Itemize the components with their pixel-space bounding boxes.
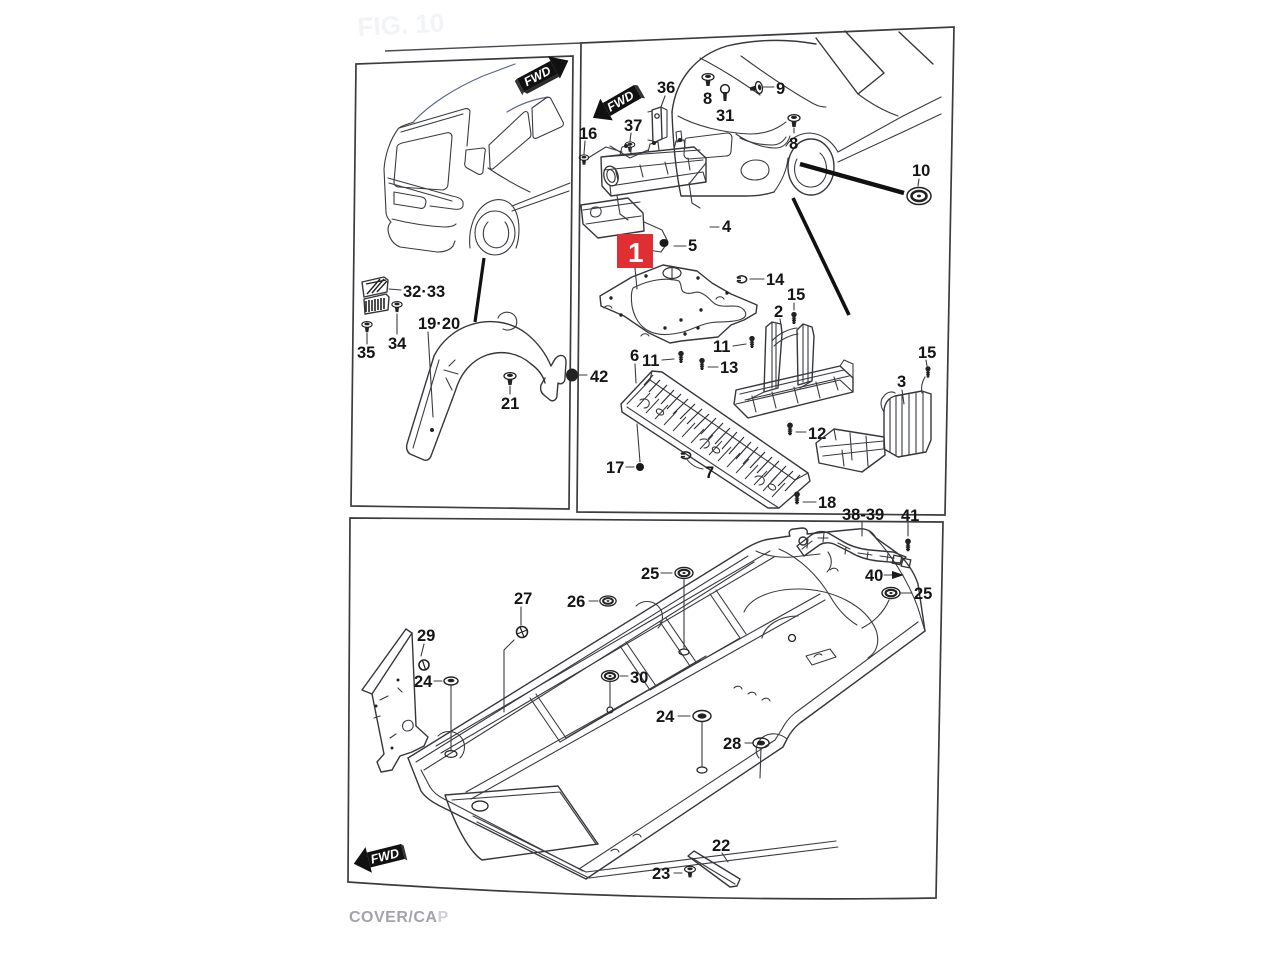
- svg-text:40: 40: [865, 567, 883, 585]
- svg-text:24: 24: [414, 673, 433, 691]
- svg-text:6: 6: [630, 347, 639, 365]
- svg-text:18: 18: [818, 494, 836, 512]
- svg-text:34: 34: [388, 335, 407, 353]
- svg-text:31: 31: [716, 107, 734, 125]
- svg-text:22: 22: [712, 837, 730, 855]
- svg-text:15: 15: [787, 286, 805, 304]
- svg-text:32·33: 32·33: [403, 283, 445, 301]
- svg-text:14: 14: [766, 271, 785, 289]
- svg-text:9: 9: [776, 80, 785, 98]
- svg-text:23: 23: [652, 865, 670, 883]
- svg-text:25: 25: [914, 585, 932, 603]
- svg-text:17: 17: [606, 459, 624, 477]
- svg-text:8: 8: [703, 90, 712, 108]
- svg-text:35: 35: [357, 344, 375, 362]
- svg-text:4: 4: [722, 218, 732, 236]
- svg-text:13: 13: [720, 359, 738, 377]
- svg-text:42: 42: [590, 368, 608, 386]
- svg-text:11: 11: [713, 338, 730, 356]
- svg-text:FIG. 10: FIG. 10: [357, 7, 445, 41]
- svg-text:19·20: 19·20: [418, 315, 460, 333]
- svg-text:27: 27: [514, 590, 532, 608]
- svg-text:1: 1: [628, 237, 644, 268]
- svg-text:16: 16: [579, 125, 597, 143]
- svg-text:29: 29: [417, 627, 435, 645]
- svg-text:36: 36: [657, 79, 675, 97]
- svg-text:11: 11: [642, 352, 659, 370]
- svg-text:25: 25: [641, 565, 659, 583]
- svg-text:26: 26: [567, 593, 585, 611]
- svg-text:37: 37: [624, 117, 642, 135]
- svg-text:38-39: 38-39: [842, 506, 884, 524]
- svg-text:21: 21: [501, 395, 519, 413]
- svg-text:7: 7: [705, 464, 714, 482]
- svg-text:3: 3: [897, 373, 906, 391]
- svg-text:28: 28: [723, 735, 741, 753]
- svg-text:COVER/CAP: COVER/CAP: [349, 909, 449, 926]
- svg-text:8: 8: [789, 135, 798, 153]
- svg-text:41: 41: [901, 507, 919, 525]
- svg-text:5: 5: [688, 237, 697, 255]
- svg-text:24: 24: [656, 708, 675, 726]
- svg-text:15: 15: [918, 344, 936, 362]
- svg-text:30: 30: [630, 669, 648, 687]
- svg-text:10: 10: [912, 162, 930, 180]
- svg-text:2: 2: [774, 303, 783, 321]
- svg-text:12: 12: [808, 425, 826, 443]
